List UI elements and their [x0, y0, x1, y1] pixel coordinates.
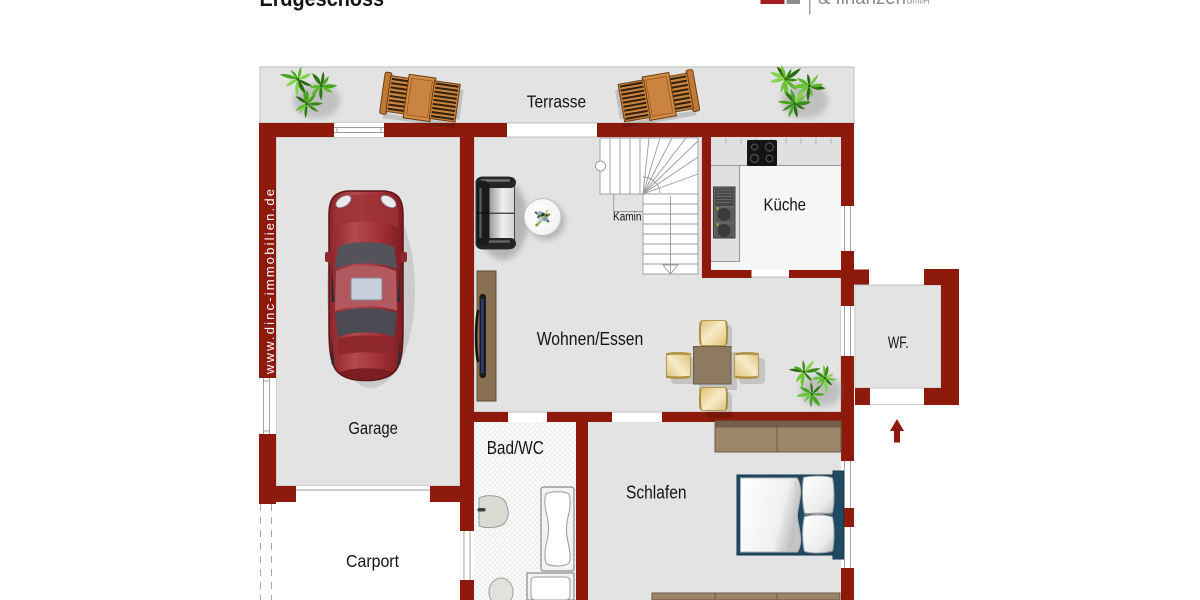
svg-text:WF.: WF. — [888, 333, 909, 352]
svg-text:Terrasse: Terrasse — [527, 92, 587, 112]
svg-text:Küche: Küche — [764, 195, 807, 215]
svg-text:Bad/WC: Bad/WC — [487, 438, 544, 458]
svg-text:Kamin: Kamin — [613, 212, 642, 224]
svg-text:GmbH: GmbH — [907, 0, 930, 6]
svg-text:Garage: Garage — [348, 418, 398, 438]
svg-text:Wohnen/Essen: Wohnen/Essen — [537, 329, 644, 349]
svg-text:Erdgeschoss: Erdgeschoss — [260, 0, 385, 11]
svg-text:www.dinc-immobilien.de: www.dinc-immobilien.de — [262, 189, 277, 375]
svg-text:Schlafen: Schlafen — [626, 483, 687, 503]
svg-text:& finanzen: & finanzen — [818, 0, 906, 9]
svg-text:Carport: Carport — [346, 551, 399, 571]
